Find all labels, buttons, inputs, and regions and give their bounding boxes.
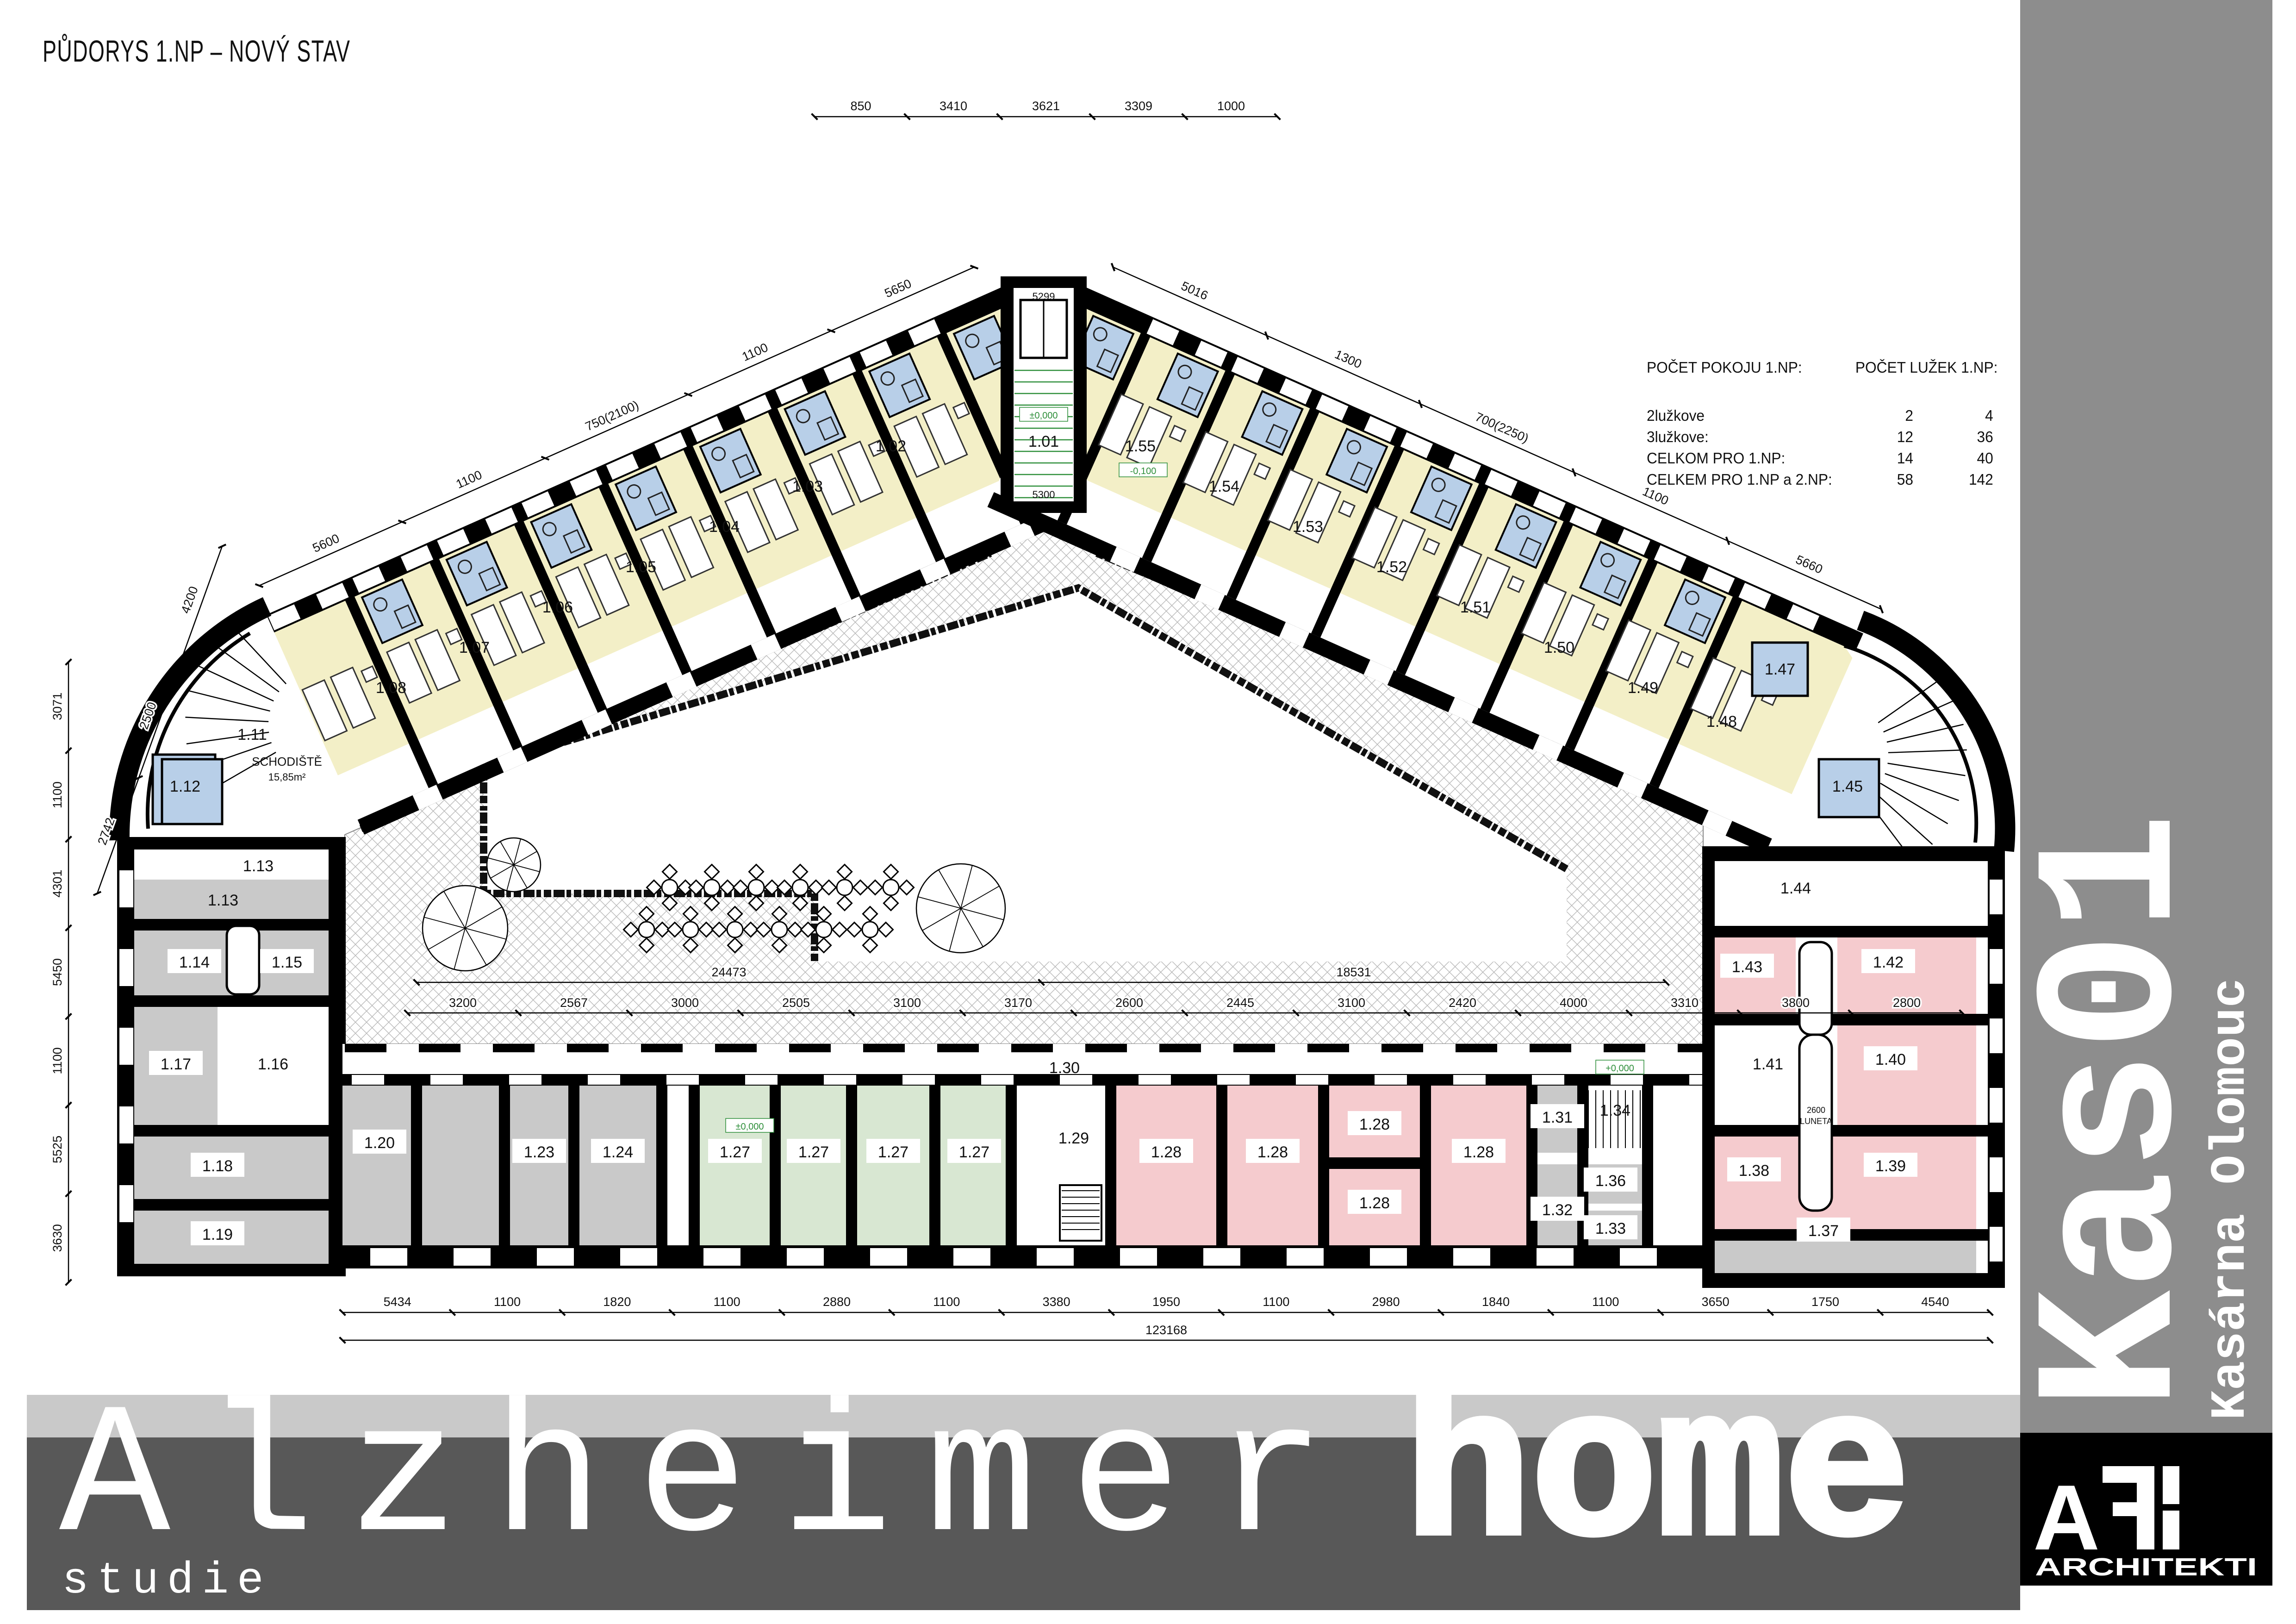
room-label: 1.08 bbox=[376, 679, 406, 697]
room-label: 1.53 bbox=[1293, 518, 1323, 536]
door-gap bbox=[509, 1075, 541, 1085]
room bbox=[694, 1086, 775, 1245]
dim-text: 1100 bbox=[1592, 1295, 1619, 1309]
room-number: 1.48 bbox=[1706, 713, 1737, 731]
door-gap bbox=[981, 1075, 1014, 1085]
dim-text: 1100 bbox=[50, 781, 64, 808]
annotation: 5299 bbox=[1033, 291, 1055, 302]
room-number: 1.13 bbox=[208, 892, 238, 909]
room-label: 1.03 bbox=[792, 478, 823, 495]
room-label: 1.13 bbox=[208, 892, 238, 909]
wall bbox=[689, 1086, 700, 1245]
annotation-text: 15,85m² bbox=[268, 771, 306, 783]
annotation-text: 5300 bbox=[1033, 489, 1055, 500]
stair-tread bbox=[1874, 792, 1932, 844]
room-number: 1.32 bbox=[1542, 1201, 1573, 1219]
room-number: 1.27 bbox=[959, 1143, 989, 1161]
dim-text: 4200 bbox=[178, 585, 201, 616]
room-label: 1.50 bbox=[1544, 639, 1574, 656]
room-label: 1.17 bbox=[149, 1051, 203, 1075]
tree-icon bbox=[423, 886, 508, 971]
wall bbox=[846, 1086, 857, 1245]
logo-text: ARCHITEKTI bbox=[2035, 1553, 2257, 1581]
room-number: 1.18 bbox=[202, 1157, 233, 1175]
wall bbox=[118, 1199, 345, 1211]
window-gap bbox=[1120, 1248, 1157, 1266]
wall bbox=[1703, 847, 1715, 1287]
dim-text: 1820 bbox=[603, 1295, 631, 1309]
project-location: Kasárna Olomouc bbox=[2203, 968, 2259, 1430]
dim-text: 5525 bbox=[50, 1136, 64, 1163]
door-gap bbox=[824, 1075, 856, 1085]
dim-text: 123168 bbox=[1145, 1323, 1187, 1337]
wall bbox=[1703, 847, 2004, 861]
window-gap bbox=[1990, 1018, 2003, 1053]
pillar bbox=[345, 1044, 386, 1052]
room-label: 1.13 bbox=[243, 857, 274, 875]
row-label: CELKOM PRO 1.NP: bbox=[1647, 448, 1855, 469]
room-number: 1.28 bbox=[1463, 1143, 1494, 1161]
room-label: 1.39 bbox=[1864, 1153, 1917, 1177]
window-gap bbox=[620, 1248, 657, 1266]
dim-text: 1000 bbox=[1217, 99, 1245, 113]
dim-text: 3410 bbox=[940, 99, 967, 113]
wall bbox=[118, 1264, 345, 1275]
dim-text: 5450 bbox=[50, 958, 64, 986]
wall bbox=[1324, 1157, 1425, 1169]
logo-turned-f-icon bbox=[2103, 1466, 2179, 1549]
room-number: 1.30 bbox=[1049, 1059, 1080, 1077]
room-label: 1.48 bbox=[1706, 713, 1737, 731]
annotation: LUNETA bbox=[1800, 1117, 1832, 1126]
dim-text: 1750 bbox=[1811, 1295, 1839, 1309]
room bbox=[1715, 1241, 1976, 1278]
wall bbox=[1420, 1086, 1431, 1245]
dim-text: 2880 bbox=[823, 1295, 851, 1309]
room-number: 1.19 bbox=[202, 1226, 233, 1243]
pillar bbox=[1011, 1044, 1053, 1052]
window-gap bbox=[119, 1028, 133, 1065]
room-number: 1.16 bbox=[258, 1056, 288, 1073]
wall bbox=[118, 995, 345, 1007]
door-gap bbox=[1611, 1075, 1643, 1085]
dim-text: 3630 bbox=[50, 1224, 64, 1252]
pillar bbox=[937, 1044, 979, 1052]
dim-text: 2600 bbox=[1115, 996, 1143, 1010]
door-gap bbox=[1217, 1075, 1250, 1085]
room-number: 1.28 bbox=[1151, 1143, 1182, 1161]
room-label: 1.27 bbox=[866, 1139, 920, 1163]
dim-text: 2505 bbox=[782, 996, 810, 1010]
window-gap bbox=[953, 1248, 990, 1266]
room-number: 1.11 bbox=[237, 726, 267, 743]
window-gap bbox=[1203, 1248, 1240, 1266]
wall bbox=[656, 1086, 667, 1245]
dim-text: 3100 bbox=[893, 996, 921, 1010]
room-number: 1.52 bbox=[1376, 558, 1407, 576]
wall bbox=[329, 838, 345, 1275]
room bbox=[1222, 1086, 1324, 1245]
room-number: 1.12 bbox=[170, 778, 200, 795]
door-gap bbox=[430, 1075, 463, 1085]
wall bbox=[1703, 1273, 2004, 1287]
room-number: 1.08 bbox=[376, 679, 406, 697]
window-gap bbox=[119, 1185, 133, 1222]
pillar bbox=[1233, 1044, 1275, 1052]
annotation-text: ±0,000 bbox=[735, 1122, 764, 1132]
annotation-text: 2600 bbox=[1807, 1106, 1825, 1115]
door-gap bbox=[745, 1075, 778, 1085]
dim-text: 4540 bbox=[1921, 1295, 1949, 1309]
room bbox=[1833, 1137, 1976, 1229]
door-gap bbox=[1139, 1075, 1171, 1085]
room-label: 1.41 bbox=[1753, 1056, 1783, 1073]
room-number: 1.13 bbox=[243, 857, 274, 875]
window-gap bbox=[370, 1248, 407, 1266]
room-label: 1.16 bbox=[258, 1056, 288, 1073]
room-label: 1.11 bbox=[237, 726, 267, 743]
room-number: 1.43 bbox=[1732, 958, 1762, 976]
pillar bbox=[641, 1044, 683, 1052]
stats-header-right: POČET LUŽEK 1.NP: bbox=[1855, 359, 1998, 376]
dim-text: 1950 bbox=[1152, 1295, 1180, 1309]
row-beds: 40 bbox=[1913, 448, 1993, 469]
annotation: ±0,000 bbox=[726, 1118, 774, 1132]
room-number: 1.41 bbox=[1753, 1056, 1783, 1073]
room-label: 1.33 bbox=[1584, 1215, 1637, 1239]
row-rooms: 14 bbox=[1855, 448, 1913, 469]
room-number: 1.14 bbox=[179, 954, 210, 971]
table-row: 2lužkove 2 4 bbox=[1647, 405, 1997, 426]
room bbox=[1648, 1086, 1703, 1245]
room bbox=[342, 1086, 417, 1245]
wall bbox=[499, 1086, 510, 1245]
project-code: Kas01 bbox=[2018, 787, 2217, 1435]
door-gap bbox=[1375, 1075, 1407, 1085]
dim-text: 3170 bbox=[1004, 996, 1032, 1010]
room-number: 1.28 bbox=[1257, 1143, 1288, 1161]
wall bbox=[1318, 1086, 1329, 1245]
wall bbox=[568, 1086, 579, 1245]
annotation-text: -0,100 bbox=[1130, 466, 1157, 476]
right-block bbox=[1703, 847, 2004, 1287]
room-label: 1.05 bbox=[626, 558, 656, 576]
room-number: 1.38 bbox=[1739, 1162, 1769, 1180]
room-number: 1.27 bbox=[878, 1143, 908, 1161]
window-gap bbox=[119, 870, 133, 907]
room-label: 1.19 bbox=[191, 1221, 244, 1245]
window-gap bbox=[703, 1248, 740, 1266]
room-number: 1.47 bbox=[1765, 661, 1795, 678]
stair-tread bbox=[1880, 783, 1948, 824]
annotation: 2600 bbox=[1807, 1106, 1825, 1115]
table-row: CELKOM PRO 1.NP: 14 40 bbox=[1647, 448, 1997, 469]
pillar bbox=[789, 1044, 831, 1052]
dim-text: 850 bbox=[850, 99, 871, 113]
room-number: 1.36 bbox=[1595, 1172, 1626, 1190]
dim-text: 2445 bbox=[1226, 996, 1254, 1010]
row-rooms: 2 bbox=[1855, 405, 1913, 426]
window-gap bbox=[870, 1248, 907, 1266]
room-number: 1.17 bbox=[161, 1056, 191, 1073]
room-label: 1.24 bbox=[591, 1139, 645, 1163]
room-label: 1.14 bbox=[168, 949, 221, 973]
room-label: 1.27 bbox=[787, 1139, 840, 1163]
annotation: -0,100 bbox=[1119, 463, 1167, 477]
annotation-text: SCHODIŠTĚ bbox=[252, 755, 322, 768]
room-label: 1.51 bbox=[1460, 599, 1491, 616]
room-label: 1.06 bbox=[542, 599, 573, 616]
pillar bbox=[715, 1044, 757, 1052]
room-label: 1.15 bbox=[260, 949, 314, 973]
dim-text: 2800 bbox=[1893, 996, 1921, 1010]
room-number: 1.28 bbox=[1359, 1194, 1390, 1212]
wall bbox=[1703, 926, 2004, 937]
room bbox=[417, 1086, 504, 1245]
dim-text: 3100 bbox=[1338, 996, 1365, 1010]
dim-text: 2420 bbox=[1449, 996, 1476, 1010]
room-label: 1.55 bbox=[1125, 437, 1156, 455]
room-number: 1.01 bbox=[1028, 433, 1059, 450]
architect-logo: A ARCHITEKTI bbox=[2020, 1433, 2272, 1586]
window-gap bbox=[537, 1248, 574, 1266]
dim-text: 1100 bbox=[933, 1295, 960, 1309]
room-label: 1.28 bbox=[1246, 1139, 1300, 1163]
room-number: 1.20 bbox=[364, 1134, 395, 1152]
room-label: 1.32 bbox=[1531, 1197, 1584, 1221]
room-label: 1.31 bbox=[1531, 1104, 1584, 1128]
annotation: ±0,000 bbox=[1020, 407, 1068, 421]
room-number: 1.28 bbox=[1359, 1116, 1390, 1133]
pillar bbox=[419, 1044, 460, 1052]
pillar bbox=[1530, 1044, 1571, 1052]
door-gap bbox=[588, 1075, 620, 1085]
dim-text: 3800 bbox=[1782, 996, 1810, 1010]
dim-text: 1840 bbox=[1482, 1295, 1510, 1309]
room bbox=[1837, 1025, 1976, 1125]
room-number: 1.07 bbox=[459, 639, 490, 656]
room-number: 1.51 bbox=[1460, 599, 1491, 616]
row-rooms: 12 bbox=[1855, 426, 1913, 448]
window-gap bbox=[1037, 1248, 1074, 1266]
room-label: 1.38 bbox=[1727, 1157, 1781, 1181]
annotation: 5300 bbox=[1033, 489, 1055, 500]
door-gap bbox=[1532, 1075, 1564, 1085]
dim-text: 3200 bbox=[449, 996, 477, 1010]
room-number: 1.37 bbox=[1808, 1222, 1839, 1240]
wall bbox=[1703, 1125, 2004, 1137]
room-label: 1.42 bbox=[1861, 949, 1915, 973]
room-number: 1.44 bbox=[1780, 880, 1811, 897]
dim-text: 2980 bbox=[1372, 1295, 1400, 1309]
annotation-text: LUNETA bbox=[1800, 1117, 1832, 1126]
room-label: 1.18 bbox=[191, 1153, 244, 1177]
window-gap bbox=[1990, 880, 2003, 914]
window-gap bbox=[1453, 1248, 1490, 1266]
room bbox=[775, 1086, 852, 1245]
dim-text: 3621 bbox=[1032, 99, 1060, 113]
table-row: CELKEM PRO 1.NP a 2.NP: 58 142 bbox=[1647, 469, 1997, 490]
window-gap bbox=[119, 1106, 133, 1143]
annotation: SCHODIŠTĚ bbox=[252, 755, 322, 768]
wall bbox=[118, 1125, 345, 1137]
room-label: 1.40 bbox=[1864, 1046, 1917, 1070]
room-number: 1.06 bbox=[542, 599, 573, 616]
room bbox=[935, 1086, 1011, 1245]
room-label: 1.07 bbox=[459, 639, 490, 656]
room-label: 1.02 bbox=[876, 437, 906, 455]
sheet-title: PŮDORYS 1.NP – NOVÝ STAV bbox=[43, 33, 350, 69]
project-subtitle: studie bbox=[62, 1555, 272, 1606]
wall bbox=[1642, 1086, 1653, 1245]
room-label: 1.20 bbox=[353, 1130, 406, 1154]
room-label: 1.34 bbox=[1600, 1102, 1630, 1119]
window-gap bbox=[1370, 1248, 1407, 1266]
row-beds: 4 bbox=[1913, 405, 1993, 426]
dim-text: 3310 bbox=[1671, 996, 1699, 1010]
room-number: 1.15 bbox=[272, 954, 302, 971]
dim-text: 3071 bbox=[50, 693, 64, 720]
room-number: 1.03 bbox=[792, 478, 823, 495]
room-label: 1.30 bbox=[1049, 1059, 1080, 1077]
door-gap bbox=[1296, 1075, 1328, 1085]
door-gap bbox=[352, 1075, 384, 1085]
row-label: 2lužkove bbox=[1647, 405, 1855, 426]
room-number: 1.53 bbox=[1293, 518, 1323, 536]
room-label: 1.44 bbox=[1780, 880, 1811, 897]
wall bbox=[1105, 1086, 1116, 1245]
dim-text: 4000 bbox=[1560, 996, 1587, 1010]
room-number: 1.33 bbox=[1595, 1220, 1626, 1237]
annotation: 15,85m² bbox=[268, 771, 306, 783]
room-label: 1.54 bbox=[1209, 478, 1239, 495]
room-number: 1.29 bbox=[1058, 1130, 1089, 1147]
dim-text: 3380 bbox=[1043, 1295, 1070, 1309]
dim-text: 1100 bbox=[50, 1047, 64, 1074]
pillar bbox=[1085, 1044, 1127, 1052]
row-label: 3lužkove: bbox=[1647, 426, 1855, 448]
dim-text: 18531 bbox=[1336, 965, 1371, 979]
dim-text: 1100 bbox=[494, 1295, 521, 1309]
window-gap bbox=[787, 1248, 824, 1266]
dim-text: 5434 bbox=[384, 1295, 411, 1309]
window-gap bbox=[1990, 1088, 2003, 1123]
window-gap bbox=[1990, 1227, 2003, 1262]
room-number: 1.02 bbox=[876, 437, 906, 455]
wall bbox=[1006, 1086, 1017, 1245]
room-count-table: POČET POKOJU 1.NP: POČET LUŽEK 1.NP: 2lu… bbox=[1647, 359, 1997, 490]
room-number: 1.45 bbox=[1832, 778, 1863, 795]
row-rooms: 58 bbox=[1855, 469, 1913, 490]
room-number: 1.49 bbox=[1628, 679, 1658, 697]
annotation-text: +0,000 bbox=[1605, 1063, 1634, 1074]
dim-text: 4301 bbox=[50, 870, 64, 898]
room-number: 1.05 bbox=[626, 558, 656, 576]
dim-text: 1100 bbox=[714, 1295, 740, 1309]
room-number: 1.31 bbox=[1542, 1109, 1573, 1126]
room-label: 1.36 bbox=[1584, 1168, 1637, 1192]
pillar bbox=[1307, 1044, 1349, 1052]
room-number: 1.55 bbox=[1125, 437, 1156, 455]
wall bbox=[1216, 1086, 1227, 1245]
window-gap bbox=[1287, 1248, 1324, 1266]
room-number: 1.34 bbox=[1600, 1102, 1630, 1119]
pillar bbox=[1381, 1044, 1423, 1052]
room-label: 1.37 bbox=[1797, 1218, 1850, 1242]
table-row: 3lužkove: 12 36 bbox=[1647, 426, 1997, 448]
pillar bbox=[863, 1044, 905, 1052]
wall bbox=[929, 1086, 940, 1245]
pillar bbox=[1456, 1044, 1497, 1052]
window-gap bbox=[119, 949, 133, 986]
table-long bbox=[227, 926, 259, 994]
stair-small bbox=[1060, 1185, 1101, 1241]
window-gap bbox=[1620, 1248, 1657, 1266]
room-number: 1.40 bbox=[1875, 1051, 1906, 1068]
door-gap bbox=[1453, 1075, 1486, 1085]
room-label: 1.47 bbox=[1765, 661, 1795, 678]
room-number: 1.50 bbox=[1544, 639, 1574, 656]
room-label: 1.27 bbox=[947, 1139, 1001, 1163]
room-label: 1.43 bbox=[1720, 954, 1774, 978]
room bbox=[574, 1086, 662, 1245]
dim-text: 3650 bbox=[1702, 1295, 1730, 1309]
room-label: 1.29 bbox=[1058, 1130, 1089, 1147]
wall bbox=[411, 1086, 422, 1245]
wall bbox=[770, 1086, 781, 1245]
stats-header-left: POČET POKOJU 1.NP: bbox=[1647, 359, 1802, 376]
window-gap bbox=[1990, 949, 2003, 984]
tree-icon bbox=[487, 838, 541, 892]
central-staircase bbox=[1002, 278, 1085, 512]
dim-text: 3000 bbox=[671, 996, 699, 1010]
room bbox=[1111, 1086, 1222, 1245]
annotation: +0,000 bbox=[1596, 1060, 1644, 1074]
room-number: 1.24 bbox=[603, 1143, 633, 1161]
tree-icon bbox=[916, 864, 1005, 953]
pillar bbox=[567, 1044, 609, 1052]
room-number: 1.54 bbox=[1209, 478, 1239, 495]
pillar bbox=[493, 1044, 535, 1052]
dim-text: 2567 bbox=[560, 996, 588, 1010]
wall bbox=[118, 838, 345, 849]
pillar bbox=[1159, 1044, 1201, 1052]
room-number: 1.27 bbox=[720, 1143, 750, 1161]
wall bbox=[1703, 1229, 2004, 1241]
room bbox=[852, 1086, 935, 1245]
row-label: CELKEM PRO 1.NP a 2.NP: bbox=[1647, 469, 1855, 490]
pillar bbox=[1604, 1044, 1645, 1052]
room-label: 1.52 bbox=[1376, 558, 1407, 576]
wall bbox=[342, 1074, 1703, 1086]
room bbox=[1425, 1086, 1532, 1245]
room-label: 1.28 bbox=[1348, 1190, 1401, 1214]
room-label: 1.28 bbox=[1348, 1111, 1401, 1135]
room-number: 1.27 bbox=[798, 1143, 829, 1161]
dim-text: 1100 bbox=[1263, 1295, 1289, 1309]
room-label: 1.45 bbox=[1832, 778, 1863, 795]
room-number: 1.23 bbox=[524, 1143, 554, 1161]
room bbox=[504, 1086, 574, 1245]
room-number: 1.42 bbox=[1873, 954, 1904, 971]
table-long bbox=[1799, 942, 1832, 1035]
room-label: 1.49 bbox=[1628, 679, 1658, 697]
room-label: 1.04 bbox=[709, 518, 740, 536]
dim-text: 3309 bbox=[1125, 99, 1152, 113]
project-title: Alzheimer bbox=[59, 1388, 1359, 1573]
sheet: 850341036213309100056001100750(2100)1100… bbox=[0, 0, 2296, 1624]
annotation-text: ±0,000 bbox=[1029, 411, 1058, 421]
